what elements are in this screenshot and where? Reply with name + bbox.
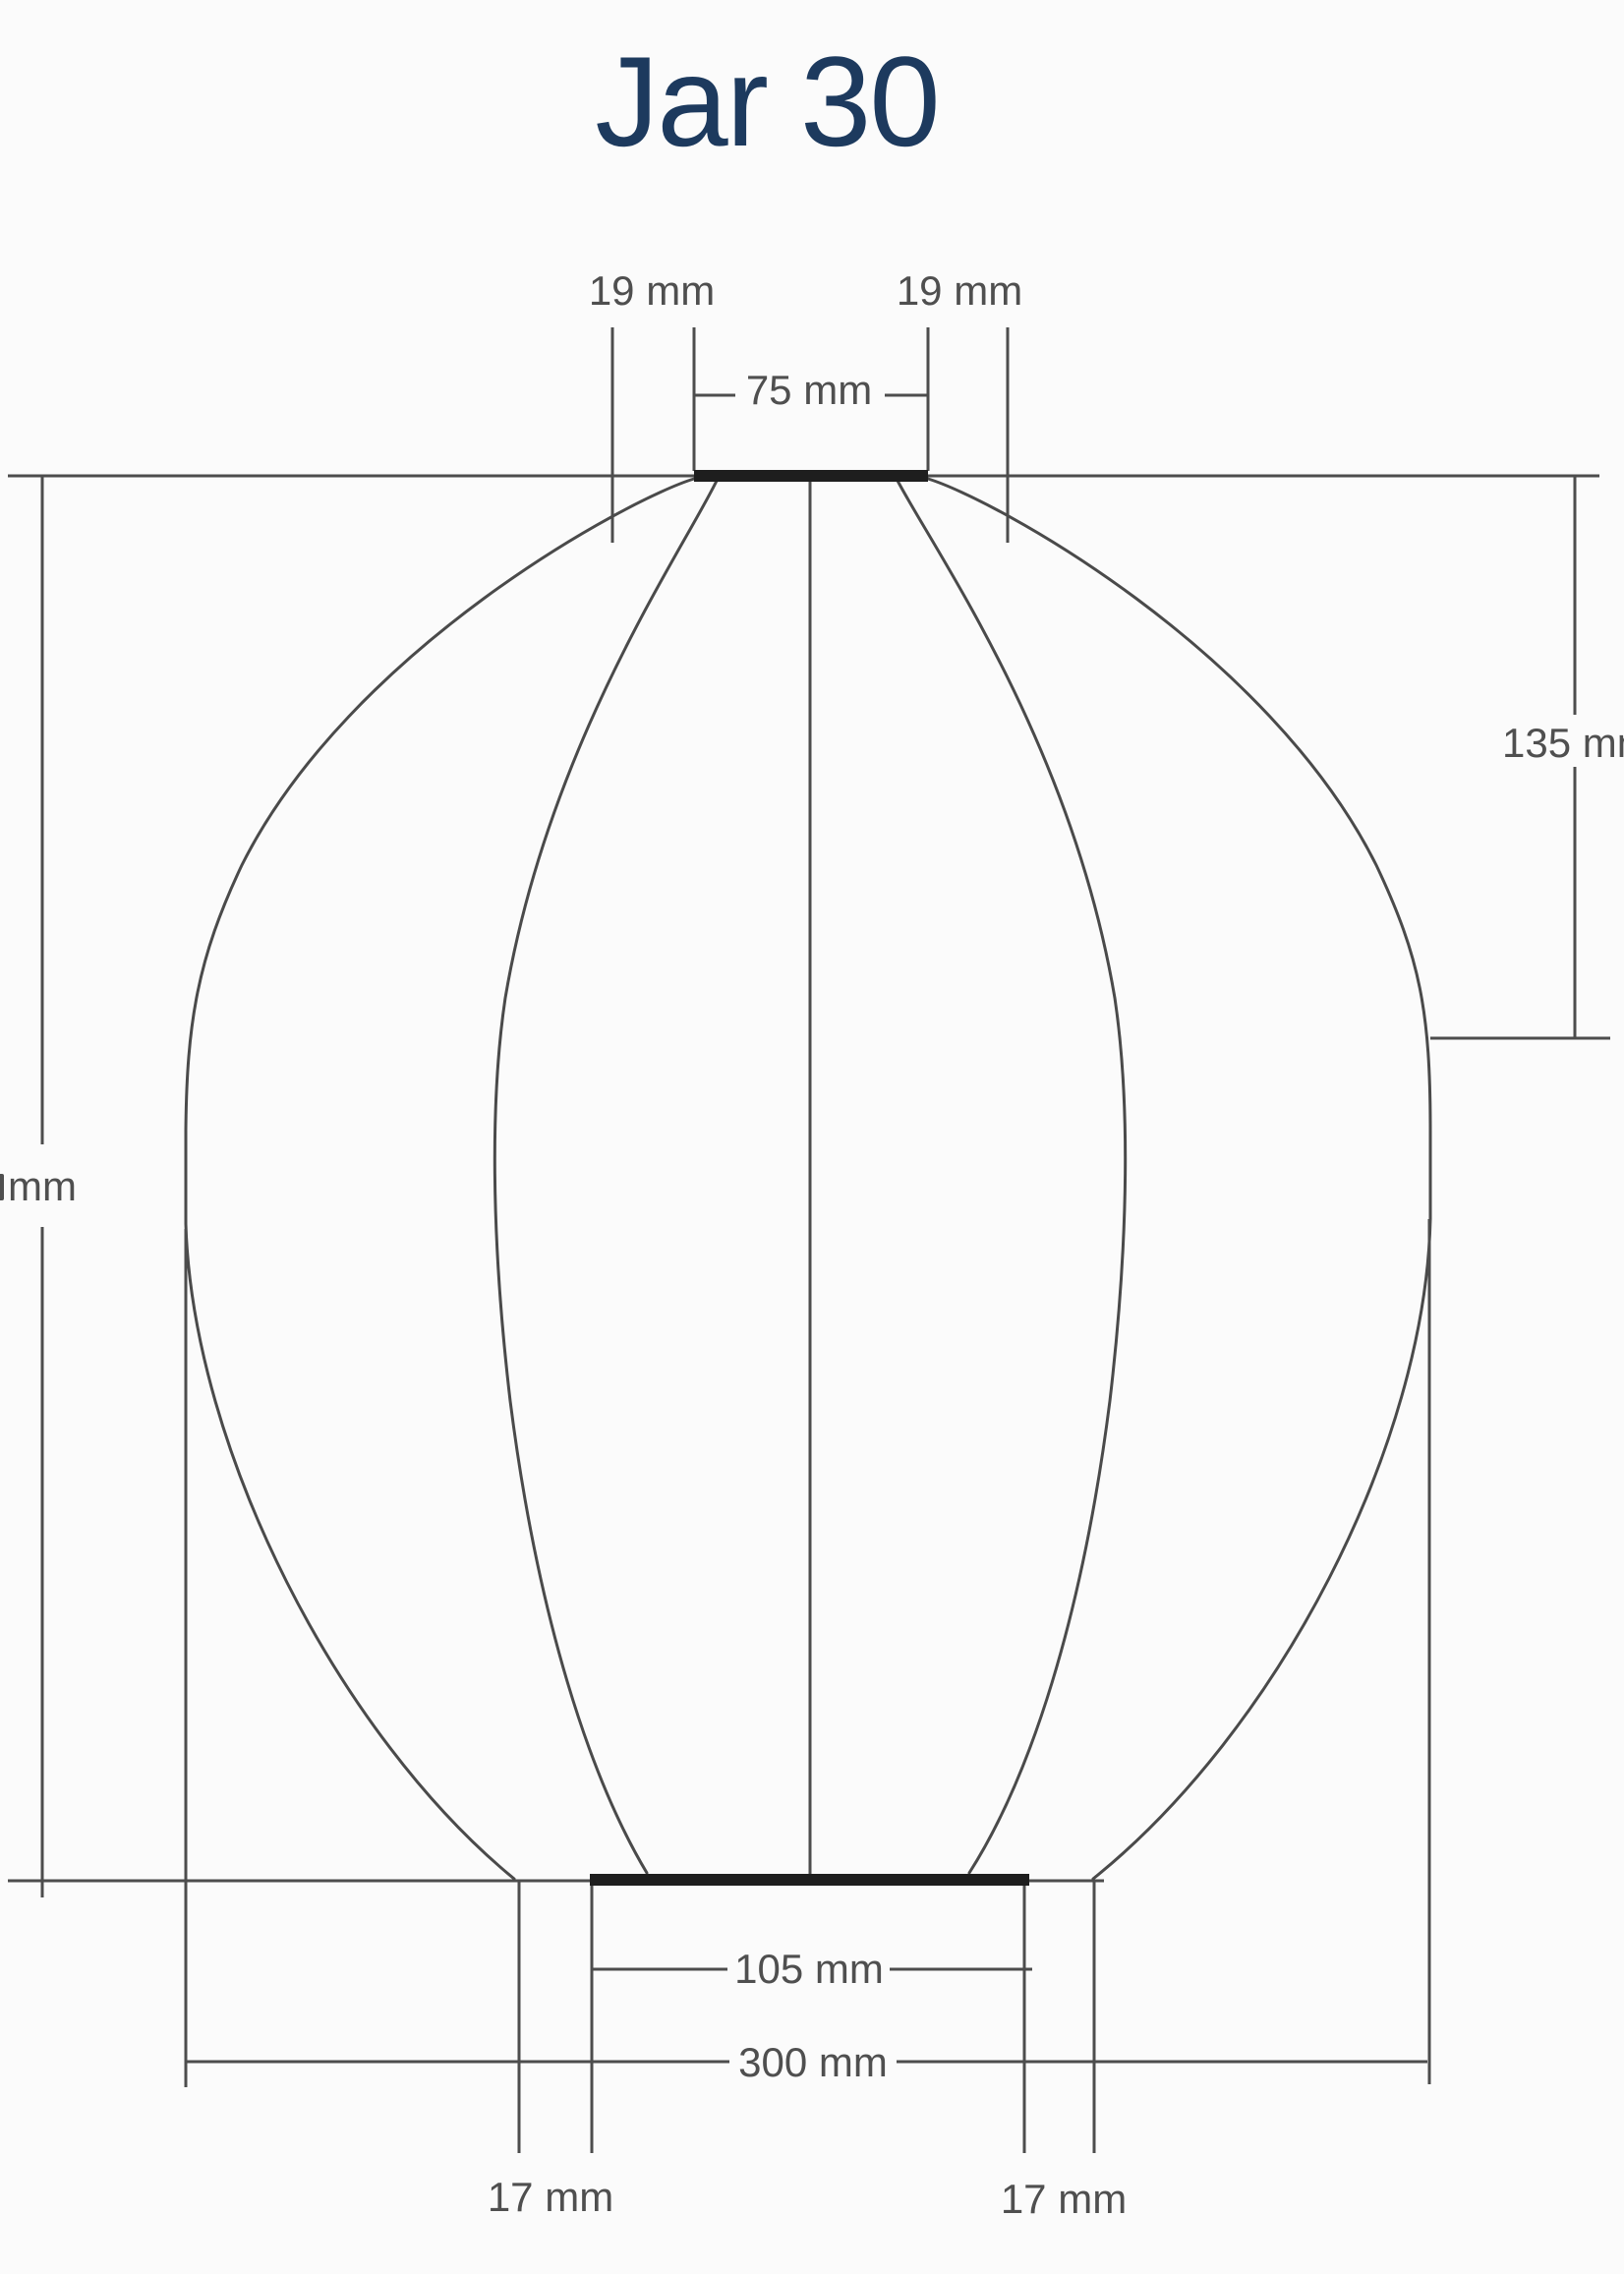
jar-rib-left xyxy=(494,479,718,1873)
dim-label-base-width: 105 mm xyxy=(734,1949,884,1990)
dim-label-overall-width: 300 mm xyxy=(738,2042,888,2083)
dim-label-neck-offset-right: 19 mm xyxy=(897,270,1022,312)
diagram-line-art xyxy=(0,0,1624,2274)
dim-label-base-inset-right: 17 mm xyxy=(1001,2179,1127,2220)
dim-label-base-inset-left: 17 mm xyxy=(488,2177,613,2218)
jar-outline-right xyxy=(928,479,1430,1879)
jar-outline-left xyxy=(186,479,694,1879)
jar-rib-right xyxy=(897,479,1126,1873)
dim-label-overall-height-clipped: mm xyxy=(8,1166,77,1207)
page-title: Jar 30 xyxy=(595,37,938,165)
height-label-clipped-digit xyxy=(0,1174,4,1200)
dim-label-shoulder-height: 135 mm xyxy=(1502,723,1624,764)
dim-label-neck-offset-left: 19 mm xyxy=(589,270,715,312)
dim-label-neck-width: 75 mm xyxy=(746,370,872,411)
jar-dimension-diagram: Jar 30 19 mm 19 mm 75 mm 135 mm mm 105 m… xyxy=(0,0,1624,2274)
